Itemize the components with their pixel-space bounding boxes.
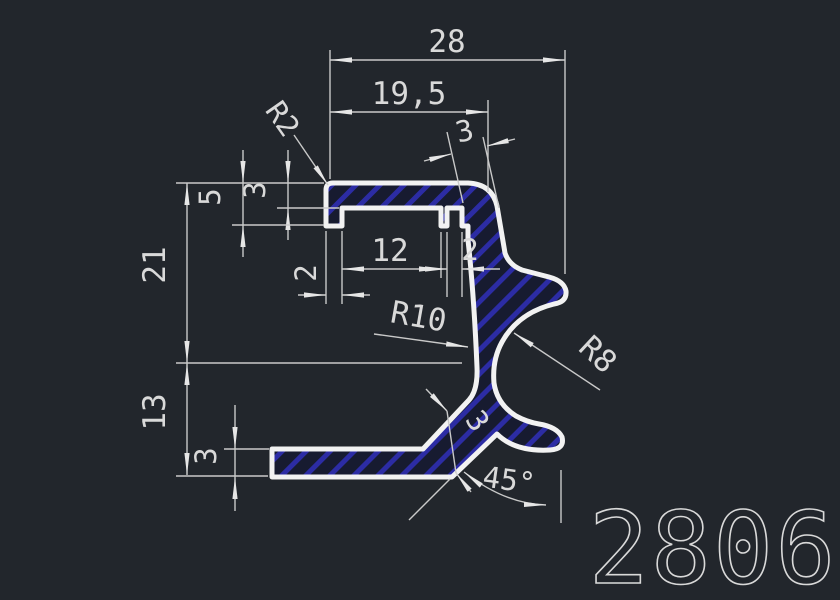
dim-label-base-3: 3 <box>189 447 223 464</box>
dim-label-12: 12 <box>371 233 408 269</box>
dim-label-slot-2: 2 <box>461 233 478 267</box>
dim-label-5: 5 <box>193 188 227 205</box>
dim-label-13: 13 <box>137 393 173 430</box>
dim-label-19-5: 19,5 <box>372 76 447 112</box>
dim-label-leg-2: 2 <box>289 264 323 281</box>
dim-label-21: 21 <box>137 246 173 283</box>
dim-label-28: 28 <box>428 24 465 60</box>
cad-drawing-canvas: 28 19,5 3 R2 3 5 21 <box>0 0 840 600</box>
part-number: 2806 <box>589 490 838 600</box>
dim-label-45: 45° <box>481 460 538 501</box>
